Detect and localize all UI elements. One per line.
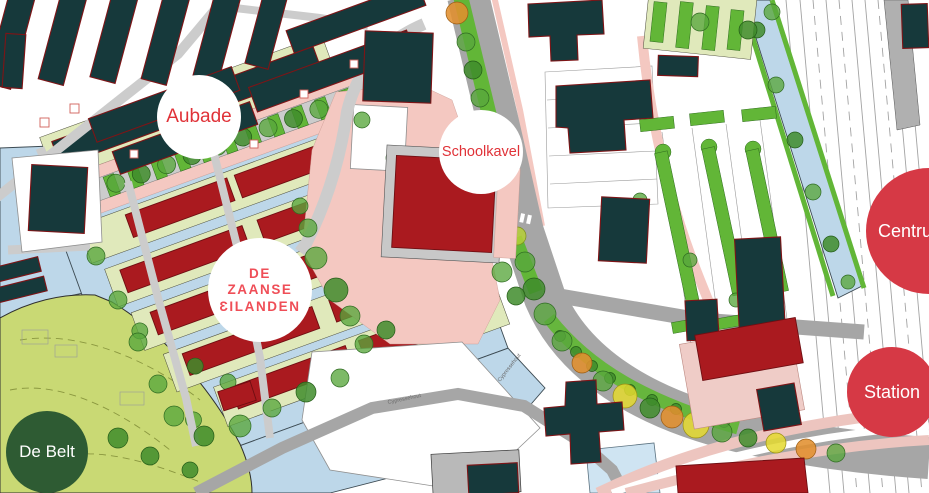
marker-centrum-label: Centrum (878, 221, 929, 242)
marker-de-belt-label: De Belt (19, 442, 75, 462)
map-canvas[interactable]: Cypressehout Cypressehout (0, 0, 929, 493)
plaza-school-building (363, 31, 433, 103)
marker-zaanse-eilanden-label: DE ZAANSE ƐILANDEN (219, 267, 300, 314)
marker-aubade-label: Aubade (166, 106, 232, 128)
marker-de-belt[interactable]: De Belt (6, 411, 88, 493)
map-stage: Cypressehout Cypressehout Aubade Schoolk… (0, 0, 929, 493)
marker-schoolkavel-label: Schoolkavel (442, 144, 520, 160)
marker-zaanse-eilanden[interactable]: DE ZAANSE ƐILANDEN (208, 238, 312, 342)
marker-station-label: Station (864, 382, 920, 403)
marker-schoolkavel[interactable]: Schoolkavel (439, 110, 523, 194)
marker-aubade[interactable]: Aubade (157, 75, 241, 159)
marker-station[interactable]: Station (847, 347, 929, 437)
